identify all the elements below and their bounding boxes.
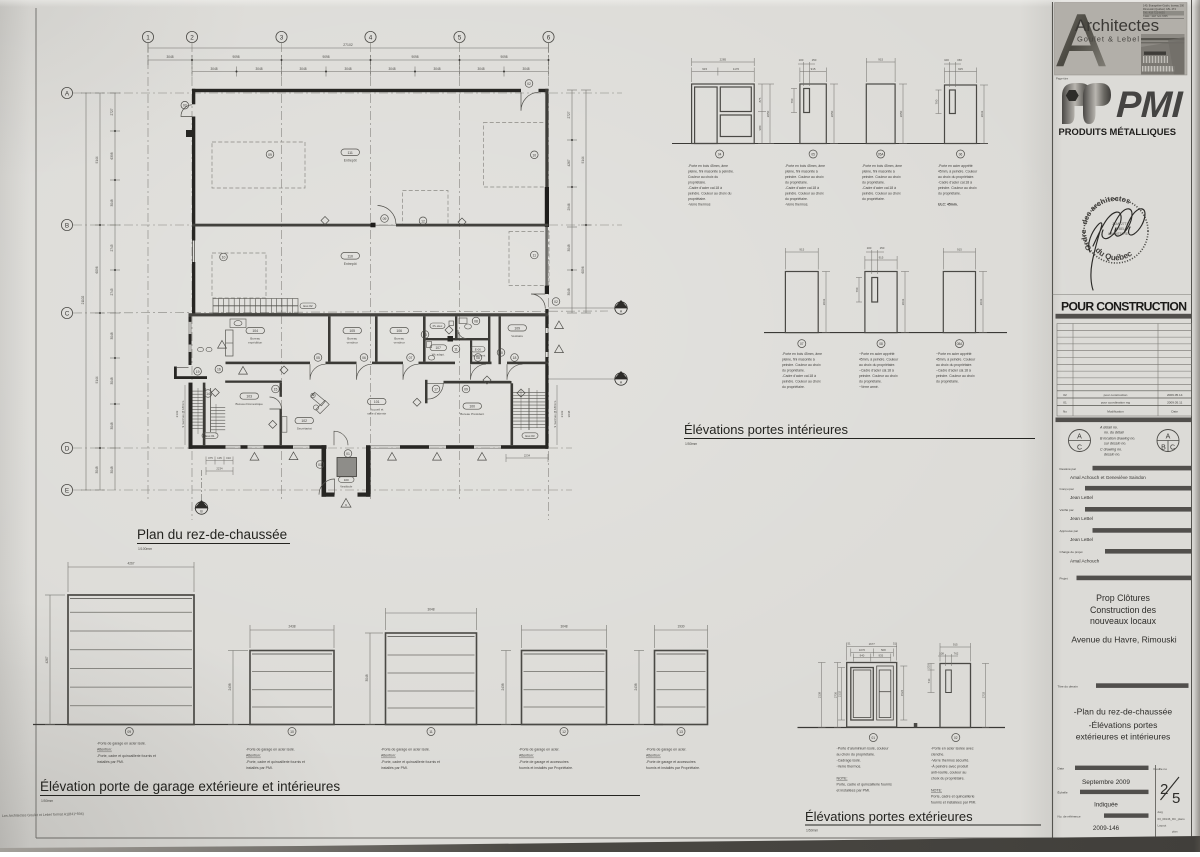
svg-text:100: 100 [944,58,949,62]
svg-text:No: No [1063,409,1067,413]
svg-text:A: A [620,310,623,314]
svg-text:2009.05.11: 2009.05.11 [1167,401,1183,405]
svg-text:11: 11 [429,730,433,734]
svg-text:pleine, fini masonite à peindr: pleine, fini masonite à peindre. [688,170,734,174]
svg-text:Attention:: Attention: [381,754,396,758]
svg-text:Construction des: Construction des [1090,605,1157,615]
svg-text:propriétaire.: propriétaire. [688,197,706,201]
svg-text:Amal Achouch et Geneviève Sain: Amal Achouch et Geneviève Saindon [1070,475,1146,480]
svg-text:51: 51 [847,642,851,646]
svg-text:Élévation porte de garage exté: Élévation porte de garage extérieure et … [40,779,340,794]
svg-text:Échelle: Échelle [1058,790,1068,795]
svg-text:915: 915 [958,67,963,71]
svg-text:PL.élec: PL.élec [433,324,443,328]
svg-text:-Porte de garage en acier.: -Porte de garage en acier. [519,748,560,752]
svg-text:Attention:: Attention: [246,754,261,758]
svg-text:2138: 2138 [818,691,822,698]
svg-text:09: 09 [464,388,468,392]
svg-text:vendeur: vendeur [394,341,405,345]
svg-text:C: C [65,311,70,318]
svg-text:4267: 4267 [45,656,49,663]
svg-text:9: 9 [345,503,347,507]
svg-text:2234: 2234 [216,467,223,471]
svg-text:101: 101 [374,400,380,404]
svg-text:915: 915 [811,67,816,71]
svg-text:3048: 3048 [567,410,571,417]
svg-text:980: 980 [758,125,762,130]
svg-text:du propriétaire.: du propriétaire. [782,369,805,373]
svg-text:04: 04 [718,153,722,157]
svg-text:Modification: Modification [1107,409,1124,413]
svg-text:935: 935 [878,653,883,657]
svg-text:150: 150 [812,58,817,62]
svg-text:915: 915 [879,256,884,260]
svg-text:installés par PMI.: installés par PMI. [381,766,408,770]
svg-text:B: B [200,510,203,514]
svg-text:NOTE:: NOTE: [931,789,942,793]
svg-text:2745: 2745 [110,244,114,251]
svg-text:3: 3 [280,35,284,42]
svg-text:Date: Date [1058,767,1065,771]
svg-text:du propriétaire.: du propriétaire. [785,181,808,185]
svg-text:2132: 2132 [838,690,842,697]
svg-text:2050: 2050 [830,110,834,117]
svg-text:Vestibule: Vestibule [340,485,353,489]
svg-text:fournis et installés par Propr: fournis et installés par Propriétaire. [646,766,700,770]
svg-text:2733: 2733 [982,691,986,698]
svg-text:peindre. Couleur au choix: peindre. Couleur au choix [938,186,977,190]
svg-text:Vestiaire: Vestiaire [511,334,523,338]
svg-text:9 marches @ 180mm: 9 marches @ 180mm [181,400,185,427]
svg-text:2009.05.14: 2009.05.14 [1167,393,1183,397]
svg-text:PRODUITS MÉTALLIQUES: PRODUITS MÉTALLIQUES [1059,126,1177,137]
svg-text:clenche.: clenche. [931,753,944,757]
svg-text:Porte, cadre et quincaillerie: Porte, cadre et quincaillerie fournis [837,783,893,787]
svg-text:100: 100 [867,246,872,250]
svg-text:peindre. Couleur au choix: peindre. Couleur au choix [782,380,821,384]
svg-text:09: 09 [383,217,387,221]
svg-text:19: 19 [196,370,200,374]
svg-text:peindre. Couleur au choix du: peindre. Couleur au choix du [688,192,731,196]
svg-text:propriétaire.: propriétaire. [688,181,706,185]
svg-text:100: 100 [469,405,475,409]
svg-text:-Porte de garage en acier isol: -Porte de garage en acier isolé. [381,748,430,752]
svg-text:Attention:: Attention: [97,748,112,752]
svg-text:3048: 3048 [110,199,114,206]
svg-text:Esc.#2: Esc.#2 [303,304,313,308]
svg-text:Élévations portes extérieures: Élévations portes extérieures [805,809,973,824]
svg-text:~Verre armé.: ~Verre armé. [859,385,879,389]
svg-text:pleine, fini masonite à: pleine, fini masonite à [862,170,895,174]
svg-text:A: A [1166,434,1171,441]
svg-text:2050: 2050 [899,110,903,117]
svg-text:Secrétariat: Secrétariat [297,426,312,430]
svg-text:Chargé de projet: Chargé de projet [1060,550,1083,554]
svg-text:3048: 3048 [427,608,434,612]
svg-text:-Porte, cadre et quincaillerie: -Porte, cadre et quincaillerie fournis e… [97,754,156,758]
svg-text:08: 08 [474,320,478,324]
svg-text:3048: 3048 [166,55,173,59]
svg-text:Les Architectes Goulet et Lebe: Les Architectes Goulet et Lebel format A… [2,812,84,818]
svg-text:du Québec: du Québec [1094,246,1135,263]
svg-text:1524: 1524 [900,689,904,696]
svg-text:2946: 2946 [567,203,571,210]
svg-text:au choix du propriétaire.: au choix du propriétaire. [936,363,972,367]
svg-text:Prop Clôtures: Prop Clôtures [1096,593,1150,603]
svg-text:Indiquée: Indiquée [1094,802,1118,809]
svg-text:Jean LeBel: Jean LeBel [1070,495,1093,500]
svg-text:-Porte, cadre et quincaillerie: -Porte, cadre et quincaillerie fournis e… [381,760,440,764]
svg-text:3048: 3048 [110,332,114,339]
svg-text:Amal Achouch: Amal Achouch [1070,558,1100,563]
svg-text:peindre. Couleur au choix: peindre. Couleur au choix [782,363,821,367]
svg-text:45mm, à peindre. Couleur: 45mm, à peindre. Couleur [936,358,976,362]
svg-text:Date: Date [1171,409,1178,413]
svg-text:du propriétaire.: du propriétaire. [936,380,959,384]
svg-text:choix du propriétaire.: choix du propriétaire. [931,777,965,781]
svg-text:1/50mm: 1/50mm [685,442,697,446]
svg-text:140, Evangeline-Godin, bureau: 140, Evangeline-Godin, bureau 200 [1143,4,1185,8]
svg-text:installés par PMI.: installés par PMI. [97,760,124,764]
svg-text:E-06: E-06 [475,348,481,352]
svg-text:1: 1 [146,35,150,42]
svg-text:9098: 9098 [232,55,239,59]
svg-text:4: 4 [369,35,373,42]
svg-text:Dessiné par: Dessiné par [1060,467,1077,471]
svg-text:au choix du propriétaire.: au choix du propriétaire. [859,363,895,367]
svg-text:6096: 6096 [581,266,585,273]
svg-text:10: 10 [290,730,294,734]
svg-text:3048: 3048 [477,67,484,71]
svg-text:A: A [620,381,623,385]
svg-text:nouveaux locaux: nouveaux locaux [1090,616,1157,626]
svg-text:1/50mm: 1/50mm [806,829,818,833]
svg-text:9098: 9098 [322,55,329,59]
svg-text:6398: 6398 [110,152,114,159]
svg-text:110: 110 [347,255,353,259]
svg-text:51: 51 [893,642,897,646]
svg-text:01: 01 [346,452,350,456]
svg-text:1070: 1070 [859,648,866,652]
svg-text:05: 05 [316,356,320,360]
svg-text:2285: 2285 [720,58,727,62]
svg-text:-Élévations portes: -Élévations portes [1089,720,1158,730]
svg-text:11: 11 [454,348,458,352]
svg-text:08: 08 [879,342,883,346]
svg-text:PMI: PMI [1115,83,1184,125]
svg-text:4267: 4267 [127,562,134,566]
svg-text:9 marches @ 180mm: 9 marches @ 180mm [553,400,557,427]
svg-text:3048: 3048 [522,67,529,71]
svg-text:109: 109 [514,327,520,331]
svg-text:3048: 3048 [344,67,351,71]
svg-text:100: 100 [799,58,804,62]
svg-text:-Cadre d'acier cal.18 à: -Cadre d'acier cal.18 à [938,181,972,185]
svg-text:Couleur au choix du: Couleur au choix du [688,175,718,179]
svg-text:3048: 3048 [255,67,262,71]
svg-text:02: 02 [527,82,531,86]
svg-text:2032: 2032 [979,298,983,305]
svg-text:03: 03 [183,104,187,108]
svg-text:C drawing no.: C drawing no. [1100,448,1122,452]
svg-text:13: 13 [679,730,683,734]
svg-text:no. du détail: no. du détail [1104,431,1124,435]
svg-text:1170: 1170 [733,67,740,71]
svg-text:anti-rouille, couleur au: anti-rouille, couleur au [931,771,966,775]
svg-text:111: 111 [347,151,352,155]
svg-text:peindre. Couleur au choix: peindre. Couleur au choix [936,374,975,378]
svg-text:Jean LeBel: Jean LeBel [1070,537,1093,542]
svg-text:5: 5 [1172,790,1180,807]
svg-text:3048: 3048 [567,288,571,295]
svg-text:-Porte de garage en acier isol: -Porte de garage en acier isolé. [246,748,295,752]
svg-text:peindre. Couleur au choix: peindre. Couleur au choix [859,374,898,378]
svg-text:1/100mm: 1/100mm [138,547,152,551]
svg-text:Vérifié par: Vérifié par [1060,508,1074,512]
svg-text:2438: 2438 [288,625,295,629]
svg-text:9098: 9098 [500,55,507,59]
svg-text:12: 12 [421,219,425,223]
svg-text:45mm, à peindre. Couleur: 45mm, à peindre. Couleur [938,170,978,174]
svg-text:07: 07 [409,356,413,360]
svg-text:~Porte en acier apprêté: ~Porte en acier apprêté [936,352,972,356]
svg-text:2727: 2727 [110,108,114,115]
svg-text:3048: 3048 [560,625,567,629]
svg-text:Bureau Domestique: Bureau Domestique [236,402,264,406]
svg-text:pour coordination mg: pour coordination mg [1101,401,1130,405]
svg-text:2234: 2234 [524,454,531,458]
svg-text:A: A [1077,434,1082,441]
svg-text:03_09146_RC_plans: 03_09146_RC_plans [1158,817,1186,821]
svg-text:08A: 08A [957,342,964,346]
svg-text:Architectes: Architectes [1075,16,1159,35]
svg-text:au choix du propriétaire.: au choix du propriétaire. [837,753,876,757]
svg-text:05: 05 [811,153,815,157]
svg-text:3048: 3048 [110,422,114,429]
svg-text:875: 875 [758,97,762,102]
svg-text:No. de référence: No. de référence [1058,814,1081,818]
svg-text:2050: 2050 [766,110,770,117]
svg-text:2438: 2438 [634,683,638,690]
svg-text:2727: 2727 [567,111,571,118]
svg-text:02: 02 [954,736,958,740]
svg-text:2032: 2032 [822,298,826,305]
svg-text:10: 10 [222,256,226,260]
svg-text:15: 15 [274,388,278,392]
svg-text:vendeur: vendeur [347,341,358,345]
svg-text:2: 2 [190,35,194,42]
svg-text:au choix du propriétaire.: au choix du propriétaire. [938,175,974,179]
svg-text:02: 02 [1063,393,1067,397]
svg-text:9144: 9144 [581,156,585,163]
svg-text:Élévations portes intérieures: Élévations portes intérieures [684,422,849,437]
svg-text:3048: 3048 [110,377,114,384]
svg-text:-Plan du rez-de-chaussée: -Plan du rez-de-chaussée [1074,707,1173,717]
svg-text:915: 915 [702,67,707,71]
svg-text:Rangement: Rangement [471,354,486,358]
svg-text:150: 150 [880,246,885,250]
svg-text:Esc.#1: Esc.#1 [205,434,215,438]
svg-text:E: E [65,488,69,495]
svg-text:06: 06 [959,153,963,157]
svg-text:-À peindre avec produit: -À peindre avec produit [931,765,968,769]
svg-text:fournis et installées par PMI.: fournis et installées par PMI. [931,801,976,805]
svg-text:Entrepôt: Entrepôt [344,159,357,163]
svg-text:Septembre 2009: Septembre 2009 [1082,779,1130,786]
svg-text:2133: 2133 [175,410,179,417]
svg-text:Page-titre: Page-titre [1056,77,1069,81]
svg-text:1677: 1677 [869,642,876,646]
svg-text:6: 6 [547,35,551,42]
svg-text:du propriétaire.: du propriétaire. [862,197,885,201]
svg-text:2032: 2032 [980,110,984,117]
svg-text:1/50mm: 1/50mm [41,799,53,803]
svg-text:940: 940 [860,653,865,657]
svg-text:-Porte d'aluminium isolé, coul: -Porte d'aluminium isolé, couleur [837,747,890,751]
svg-text:Attention:: Attention: [646,754,661,758]
svg-text:3048: 3048 [210,67,217,71]
svg-text:-Cadrage isolé.: -Cadrage isolé. [837,759,861,763]
svg-text:45mm, à peindre. Couleur: 45mm, à peindre. Couleur [859,358,899,362]
svg-text:B location drawing no.: B location drawing no. [1100,437,1135,441]
svg-text:-Porte, cadre et quincaillerie: -Porte, cadre et quincaillerie fournis e… [246,760,305,764]
svg-text:Conçu par: Conçu par [1060,487,1074,491]
svg-text:pleine, fini masonite à: pleine, fini masonite à [785,170,818,174]
svg-text:11: 11 [533,254,537,258]
svg-text:762: 762 [954,652,959,656]
svg-text:-Cadre d'acier cal.18 à: -Cadre d'acier cal.18 à [785,186,819,190]
svg-text:A: A [65,91,70,98]
svg-text:-Porte en acier apprêté: -Porte en acier apprêté [938,164,973,168]
svg-text:-Porte en bois 45mm, âme: -Porte en bois 45mm, âme [862,164,902,168]
svg-text:extérieures et intérieures: extérieures et intérieures [1076,732,1171,742]
svg-text:105: 105 [349,329,355,333]
svg-text:-Porte de garage en acier.: -Porte de garage en acier. [646,748,687,752]
svg-text:-Porte de garage et accessoire: -Porte de garage et accessoires [646,760,696,764]
svg-text:C: C [1077,445,1082,452]
svg-text:-Cadre d'acier cal.18 à: -Cadre d'acier cal.18 à [688,186,722,190]
svg-text:Jean LeBel: Jean LeBel [1070,516,1093,521]
svg-text:2438: 2438 [501,683,505,690]
svg-text:10: 10 [532,153,536,157]
svg-text:Bureau Président: Bureau Président [460,412,484,416]
svg-text:915: 915 [957,248,962,252]
svg-text:01: 01 [1063,401,1067,405]
svg-text:710: 710 [927,678,931,683]
svg-text:NOTE:: NOTE: [837,777,848,781]
svg-text:27102: 27102 [343,43,353,47]
svg-text:ULC: 45min.: ULC: 45min. [938,203,958,207]
svg-text:pour construction: pour construction [1104,393,1128,397]
svg-text:2745: 2745 [110,288,114,295]
svg-text:-Porte en bois 45mm, âme: -Porte en bois 45mm, âme [688,164,728,168]
svg-text:105: 105 [217,456,222,460]
svg-text:fournis et installés par Propr: fournis et installés par Propriétaire. [519,766,573,770]
svg-text:6096: 6096 [95,266,99,273]
svg-text:3048: 3048 [388,67,395,71]
svg-text:-Cadre d'acier cal.18 à: -Cadre d'acier cal.18 à [782,374,816,378]
svg-text:2009-146: 2009-146 [1093,825,1120,832]
svg-text:12: 12 [562,730,566,734]
svg-text:3048: 3048 [299,67,306,71]
svg-text:18: 18 [513,356,517,360]
svg-text:Porte, cadre et quincaillerie: Porte, cadre et quincaillerie [931,795,975,799]
svg-text:760: 760 [790,98,794,103]
svg-text:plan: plan [1172,830,1178,834]
svg-text:4267: 4267 [567,159,571,166]
svg-text:Approuvé par: Approuvé par [1060,529,1079,533]
svg-text:06: 06 [362,356,366,360]
svg-text:915: 915 [799,248,804,252]
svg-text:du propriétaire.: du propriétaire. [862,181,885,185]
svg-text:21102: 21102 [81,295,85,304]
svg-text:2438: 2438 [228,683,232,690]
svg-text:Layout: Layout [1158,824,1167,828]
svg-text:3048: 3048 [110,466,114,473]
svg-text:Rimouski (Québec) G5L 4T4: Rimouski (Québec) G5L 4T4 [1143,7,1176,11]
svg-text:du propriétaire.: du propriétaire. [782,385,805,389]
svg-text:075: 075 [208,456,213,460]
svg-text:3048: 3048 [567,244,571,251]
svg-text:dessin no.: dessin no. [1104,453,1120,457]
svg-text:100: 100 [344,478,349,482]
svg-text:010: 010 [226,456,231,460]
svg-text:102: 102 [301,419,307,423]
svg-text:B: B [65,223,69,230]
svg-text:peindre. Couleur au choix: peindre. Couleur au choix [862,175,901,179]
svg-text:du propriétaire.: du propriétaire. [785,197,808,201]
svg-text:POUR CONSTRUCTION: POUR CONSTRUCTION [1061,300,1187,314]
svg-text:3048: 3048 [95,466,99,473]
svg-text:Entrepôt: Entrepôt [344,262,357,266]
svg-text:Titre du dessin: Titre du dessin [1058,685,1078,689]
svg-text:09: 09 [268,153,272,157]
svg-text:150: 150 [957,58,962,62]
svg-text:10: 10 [499,351,503,355]
svg-text:9144: 9144 [95,376,99,383]
svg-text:05A: 05A [878,153,885,157]
svg-text:A detail no.: A detail no. [1099,426,1118,430]
svg-text:Projet: Projet [1060,577,1068,581]
svg-text:-Verre thermos.: -Verre thermos. [785,203,808,207]
svg-text:02: 02 [554,300,558,304]
svg-text:104: 104 [252,329,258,333]
svg-text:pleine, fini masonite à: pleine, fini masonite à [782,358,815,362]
svg-text:peindre. Couleur au choix: peindre. Couleur au choix [862,192,901,196]
svg-text:-Porte en bois 45mm, âme: -Porte en bois 45mm, âme [785,164,825,168]
svg-text:G o u l e t & L e b e l: G o u l e t & L e b e l [1077,35,1139,44]
svg-text:du propriétaire.: du propriétaire. [859,380,882,384]
svg-text:~Cadre d'acier cal.18 à: ~Cadre d'acier cal.18 à [859,369,894,373]
svg-text:D: D [65,446,70,453]
svg-text:Avenue du Havre, Rimouski: Avenue du Havre, Rimouski [1071,635,1176,645]
svg-text:760: 760 [935,99,939,104]
svg-text:dwg: dwg [1158,810,1164,814]
svg-text:915: 915 [953,643,958,647]
svg-text:Esc.#3: Esc.#3 [525,434,535,438]
svg-text:915: 915 [878,58,883,62]
svg-text:2133: 2133 [560,410,564,417]
svg-text:et installées par PMI.: et installées par PMI. [837,789,871,793]
svg-text:108: 108 [939,652,944,656]
svg-text:14: 14 [206,392,210,396]
svg-text:du propriétaire.: du propriétaire. [938,192,961,196]
svg-text:B: B [1161,445,1166,452]
svg-text:16: 16 [217,368,221,372]
svg-text:-Porte de garage et accessoire: -Porte de garage et accessoires [519,760,569,764]
svg-text:-Verre thermos: -Verre thermos [688,203,711,207]
svg-text:-Verre thermos sécurité.: -Verre thermos sécurité. [931,759,969,763]
